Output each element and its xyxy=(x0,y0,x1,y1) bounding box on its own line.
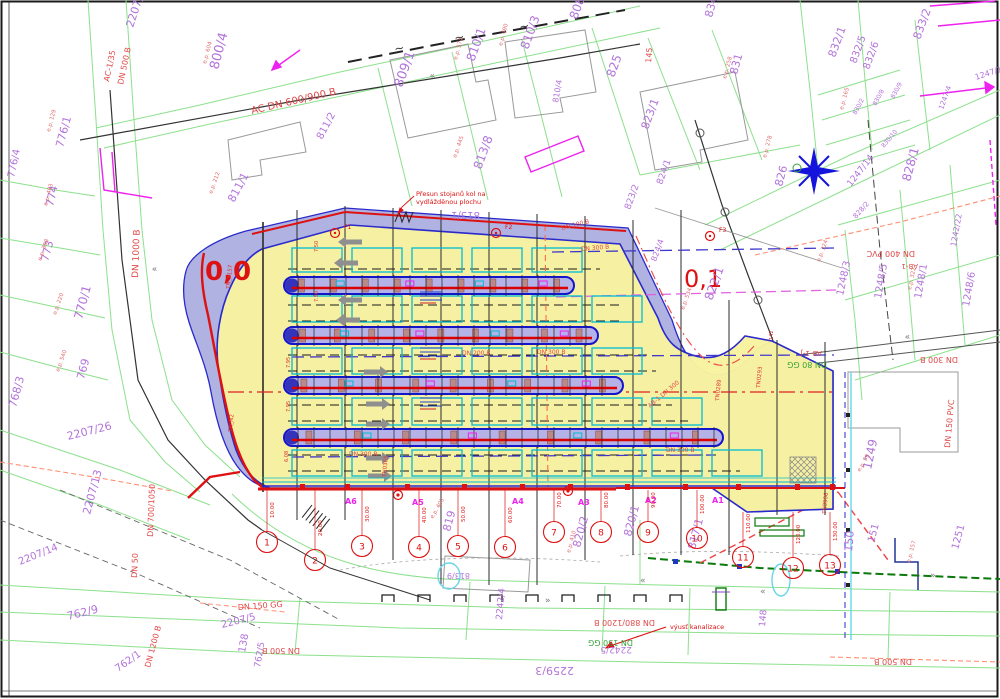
pipe-label: DN 150 GG xyxy=(588,638,633,647)
dimension-label: 7.95 xyxy=(286,357,292,368)
parcel-label: 828/1 xyxy=(899,146,921,183)
flow-chevron-icon: » xyxy=(930,571,936,581)
land-register-label: e.p. 220 xyxy=(52,292,66,316)
crossing-symbol xyxy=(382,595,394,602)
parcel-label: 819 xyxy=(440,509,458,533)
flow-chevron-icon: « xyxy=(640,576,646,586)
boundary-tick xyxy=(405,484,410,490)
chainage-label: 50.00 xyxy=(461,506,467,522)
parcel-label: 1247/4 xyxy=(937,84,953,110)
parcel-label: 1251 xyxy=(950,523,967,550)
pipe-label: DN 700/1050 xyxy=(146,484,157,537)
parcel-label: 830/10 xyxy=(880,128,899,149)
parcel-label: 810/4 xyxy=(551,79,564,103)
pipe-label: DN 50 xyxy=(130,553,140,578)
land-register-label: e.p. 129 xyxy=(46,109,58,133)
parcel-label: 830/2 xyxy=(852,97,866,116)
stairs-symbol xyxy=(302,505,330,531)
land-register-label: e.p. 445 xyxy=(452,135,466,159)
platform-marker-label: F3 xyxy=(719,227,726,234)
parcel-label: 1247/17 xyxy=(974,63,1000,82)
pipe-label: DN 1000 B xyxy=(131,229,143,278)
boundary-tick xyxy=(625,484,630,490)
platform-marker-label: F1 xyxy=(344,224,351,231)
land-register-label: e.p. 165 xyxy=(839,87,851,111)
parcel-label: 762/1 xyxy=(113,649,143,675)
parcel-label: 2207/13 xyxy=(80,468,104,516)
pipe-label: DN 300 B xyxy=(666,447,695,454)
parcel-label: 1248/5 xyxy=(873,263,890,300)
platform-marker-label: F2 xyxy=(505,224,512,231)
boundary-tick xyxy=(795,484,800,490)
pipe-label: 145 xyxy=(644,47,654,63)
parcel-label: 830/8 xyxy=(872,88,886,107)
section-number: 7 xyxy=(551,529,557,539)
pipe-label: DN 400 PVC xyxy=(866,249,915,258)
land-register-label: e.p. 278 xyxy=(762,135,774,159)
section-number: 3 xyxy=(359,543,365,553)
chainage-label: 130.00 xyxy=(833,521,839,541)
chainage-label: 70.00 xyxy=(557,492,563,508)
chainage-label: 100.00 xyxy=(700,494,706,514)
parcel-label: 2207/26 xyxy=(66,419,113,443)
parcel-label: 825 xyxy=(604,53,625,79)
parcel-label: 811/1 xyxy=(225,170,251,204)
flow-chevron-icon: « xyxy=(151,265,157,275)
pipe-label: DN 300 B xyxy=(349,451,378,458)
pipe-label: AB-1 xyxy=(901,262,918,270)
dimension-label: 142 xyxy=(769,330,775,340)
crossing-symbol xyxy=(526,595,538,602)
parcel-label: 2207/5 xyxy=(220,612,257,631)
flow-chevron-icon: » xyxy=(545,596,551,606)
chainage-label: 30.00 xyxy=(365,506,371,522)
section-number: 8 xyxy=(598,529,604,539)
site-plan-sheet: ««««««»»~~~ 0,0 0,1 Přesun stojanů kol n… xyxy=(0,0,1000,699)
land-register-label: e.p. 540 xyxy=(55,349,69,373)
bike-racks-note-line2: vydlážděnou plochu xyxy=(416,198,481,206)
pipe-label: DN 1200 B xyxy=(143,625,163,669)
parcel-label: 828/2 xyxy=(852,200,871,220)
pipe-label: DN 880/1200 B xyxy=(594,618,655,627)
parcel-label: 823/2 xyxy=(623,183,641,211)
chainage-label: 10.00 xyxy=(270,502,276,518)
section-number: 11 xyxy=(737,554,748,564)
flow-chevron-icon: « xyxy=(429,71,436,82)
dimension-label: 7.95 xyxy=(286,401,292,412)
section-number: 4 xyxy=(416,544,422,554)
parcel-label: 813/9 xyxy=(447,571,470,580)
chainage-label: 40.00 xyxy=(422,507,428,523)
chainage-label: 110.00 xyxy=(746,513,752,533)
pipe-label: AC-1/35 xyxy=(102,49,117,82)
crossing-symbol xyxy=(454,595,466,602)
section-number: 5 xyxy=(455,543,461,553)
sewer-outfall-note: výusť kanalizace xyxy=(670,622,724,631)
pipe-label: DN 500 B xyxy=(262,646,300,655)
survey-point-label: TN0906 xyxy=(822,492,830,515)
parcel-label: 1247/14 xyxy=(845,153,876,189)
crossing-symbol xyxy=(634,595,646,602)
section-number: 2 xyxy=(312,557,318,567)
parcel-label: 820/1 xyxy=(621,504,642,538)
parcel-label: 1248/6 xyxy=(961,271,978,308)
parcel-label: 834/1 xyxy=(702,0,723,19)
parcel-label: 824/1 xyxy=(655,158,673,186)
parcel-label: 811/2 xyxy=(315,111,338,142)
parcel-label: 826 xyxy=(772,164,790,188)
flow-chevron-icon: « xyxy=(904,332,911,343)
pipe-label: AB-1-J xyxy=(800,349,822,357)
parcel-label: 138 xyxy=(237,633,251,654)
crosshatch-area xyxy=(790,457,816,483)
boundary-tick xyxy=(462,484,467,490)
land-register-label: e.p. 534 xyxy=(680,287,694,311)
parcel-label: 2207/9 xyxy=(123,0,147,29)
parcel-label: 768/3 xyxy=(6,375,27,409)
section-number: 10 xyxy=(691,535,703,545)
dimension-label: 7.50 xyxy=(314,241,320,252)
flow-chevron-icon: « xyxy=(760,587,766,597)
chainage-label: 90.00 xyxy=(651,492,657,508)
section-number: 1 xyxy=(264,539,270,549)
chainage-label: 120.00 xyxy=(796,524,802,544)
boundary-tick xyxy=(736,484,741,490)
pipe-label: AC DN 600/900 B xyxy=(250,87,337,117)
parcel-label: 148 xyxy=(758,609,769,627)
parcel-label: 776/1 xyxy=(53,115,74,149)
parcel-label: 151 xyxy=(866,522,882,543)
land-register-label: e.p. 212 xyxy=(208,171,221,194)
section-number: 13 xyxy=(824,562,835,572)
land-register-label: e.p. 157 xyxy=(906,540,918,564)
pipe-label: DN 300 B xyxy=(920,355,958,364)
dimension-label: 6.08 xyxy=(284,451,290,462)
chainage-label: 60.00 xyxy=(508,507,514,523)
parcel-label: 150 xyxy=(842,530,857,552)
chainage-label: 20.00 xyxy=(318,520,324,536)
parcel-label: 1242/22 xyxy=(949,213,964,247)
site-area xyxy=(184,208,833,512)
chainage-label: 80.00 xyxy=(604,492,610,508)
boundary-tick xyxy=(520,484,525,490)
north-star-icon xyxy=(788,147,840,195)
pipe-label: DN 200 B xyxy=(462,350,491,357)
boundary-tick xyxy=(830,484,835,490)
dimension-label: 7.50 xyxy=(314,291,320,302)
land-register-label: e.p. 324 xyxy=(816,239,830,263)
parcel-label: 2242/4 xyxy=(495,588,508,621)
parcel-label: 813/8 xyxy=(471,134,496,171)
boundary-tick xyxy=(345,484,350,490)
parcel-label: 2207/14 xyxy=(17,542,60,568)
parcel-label: 832/1 xyxy=(826,25,849,59)
parcel-label: 830/9 xyxy=(890,81,904,100)
pipe-label: DN 300 B xyxy=(537,349,566,356)
crossing-symbol xyxy=(670,595,682,602)
bus-stop-label: A4 xyxy=(512,497,524,506)
parcel-label: 833/2 xyxy=(911,7,934,41)
land-register-label: e.p. 490 xyxy=(498,23,510,47)
bus-stop-label: A6 xyxy=(345,497,357,506)
parcel-label: 813/1 xyxy=(451,209,480,220)
section-number: 6 xyxy=(502,544,508,554)
boundary-tick xyxy=(683,484,688,490)
pipe-label: DN 80 GG xyxy=(787,360,827,369)
pipe-label: DN 500 B xyxy=(874,657,912,666)
bus-stop-label: A5 xyxy=(412,498,424,507)
boundary-tick xyxy=(300,484,305,490)
bus-stop-label: A1 xyxy=(712,496,724,505)
bike-racks-note-line1: Přesun stojanů kol na xyxy=(416,190,486,198)
parcel-label: 762/9 xyxy=(66,603,100,623)
pipe-label: DN 150 PVC xyxy=(943,399,956,448)
parcel-label: 2259/3 xyxy=(535,664,574,677)
parcel-label: 769 xyxy=(74,357,92,381)
bus-stop-label: A3 xyxy=(578,498,590,507)
section-number: 9 xyxy=(645,529,651,539)
crossing-symbol xyxy=(562,595,574,602)
section-number: 12 xyxy=(787,565,798,575)
site-yellow-area xyxy=(217,225,833,512)
pipe-label: DN 150 GG xyxy=(238,600,283,612)
